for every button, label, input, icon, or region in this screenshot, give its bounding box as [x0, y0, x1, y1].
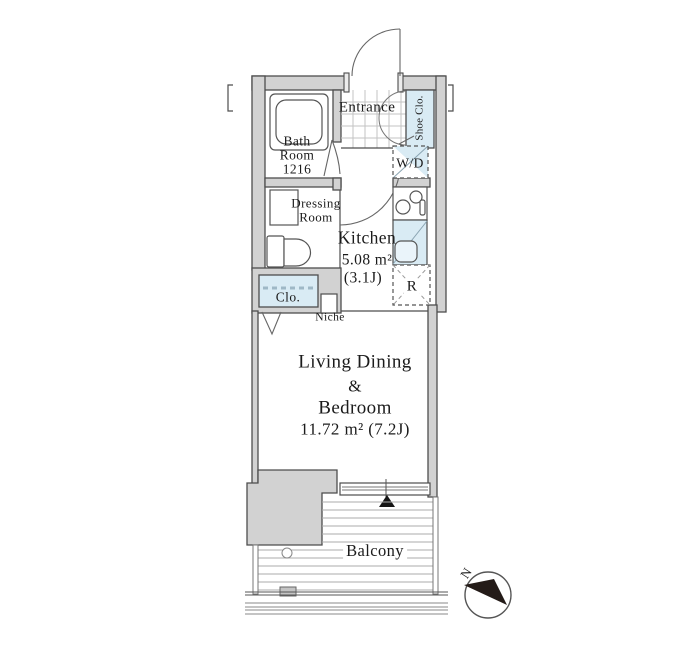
closet-label: Clo. — [276, 290, 300, 304]
wall-left-upper — [252, 76, 265, 270]
balcony-drain-icon — [282, 548, 292, 558]
tick-right — [448, 85, 453, 111]
ground-hatch-lines — [245, 603, 448, 614]
dressing-room-label-1: Dressing — [291, 197, 340, 210]
balcony-post-right — [433, 497, 438, 594]
window-direction-triangle-icon — [379, 495, 395, 507]
wall-right-upper — [436, 76, 446, 312]
floorplan-canvas: Entrance Shoe Clo. Bath Room 1216 Dressi… — [0, 0, 700, 650]
living-label-1: Living Dining — [298, 353, 411, 372]
entrance-door-swing-icon — [352, 29, 400, 76]
balcony-label: Balcony — [343, 543, 407, 560]
wall-right-lower — [428, 305, 437, 497]
balcony-edge-lines — [245, 592, 448, 595]
bathroom-label-1: Bath — [283, 134, 310, 148]
niche-box — [321, 294, 337, 313]
living-window — [340, 479, 430, 497]
living-label-2: & — [348, 378, 362, 395]
shoe-closet-label: Shoe Clo. — [415, 95, 426, 140]
sink-counter-icon — [393, 220, 427, 265]
wall-mid-upper — [333, 90, 341, 142]
balcony-post-left — [253, 545, 258, 594]
wall-bath-dressing-divider — [265, 178, 341, 187]
entrance-label: Entrance — [339, 101, 396, 116]
washer-dryer-label: W/D — [396, 156, 423, 170]
closet-folding-door-icon — [262, 312, 281, 334]
hall-door-swing-icon — [340, 165, 400, 225]
living-label-4: 11.72 m² (7.2J) — [300, 421, 410, 438]
toilet-icon — [267, 236, 311, 267]
entrance-opening — [347, 75, 399, 91]
refrigerator-label: R — [404, 280, 420, 295]
living-label-3: Bedroom — [318, 399, 392, 418]
wall-left-lower — [252, 311, 258, 485]
bathroom-label-2: Room — [280, 148, 315, 162]
bathroom-label-3: 1216 — [283, 162, 312, 176]
wall-mid-nub — [333, 178, 341, 190]
kitchen-area-tatami-label: (3.1J) — [344, 270, 382, 286]
stove-icon — [393, 187, 427, 220]
tick-left — [228, 85, 233, 111]
kitchen-area-sqm-label: 5.08 m² — [342, 252, 393, 268]
dressing-room-label-2: Room — [299, 211, 332, 224]
niche-label: Niche — [315, 312, 344, 324]
kitchen-name-label: Kitchen — [338, 229, 396, 247]
